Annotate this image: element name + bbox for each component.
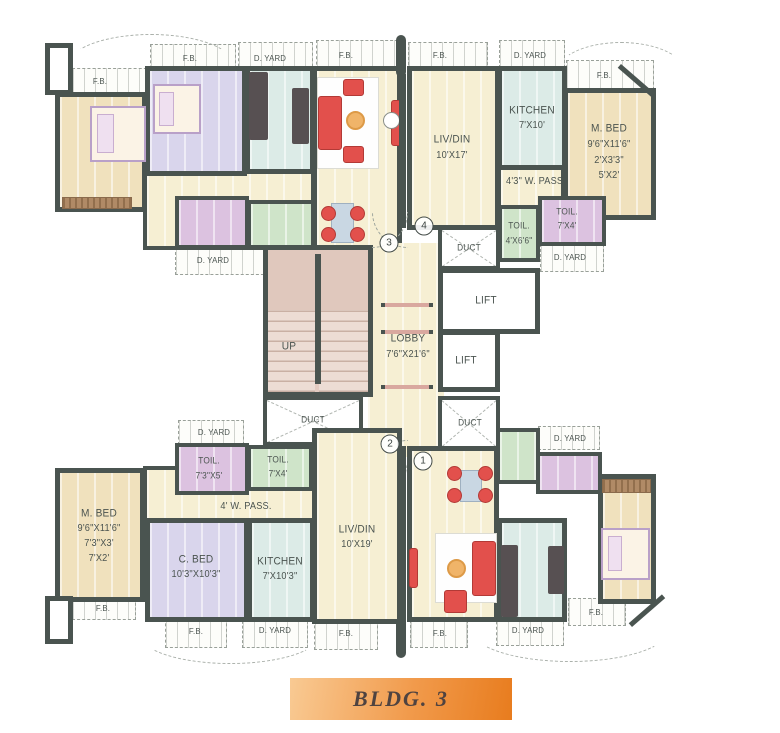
room-dims-mbed-tr-2: 2'X3'3": [594, 156, 624, 166]
strip-label-dyard: D. YARD: [259, 626, 291, 635]
lift-label: LIFT: [455, 356, 477, 367]
room-kitchen-bottom-left: [247, 518, 315, 622]
room-label-toilet-pink-bl: TOIL.: [198, 457, 219, 466]
stair-divider-wall: [315, 254, 321, 384]
room-label-mbed-bl: M. BED: [81, 509, 117, 520]
strip-label-dyard: D. YARD: [197, 256, 229, 265]
room-dims-mbed-tr-3: 5'X2': [599, 171, 620, 181]
balcony-top-left: [45, 43, 73, 95]
grid-marker-1: 1: [414, 452, 433, 471]
room-label-cbed-bl: C. BED: [179, 555, 214, 566]
strip-label-fb: F.B.: [339, 51, 353, 60]
tv-unit-icon: [409, 548, 418, 588]
chair-icon: [447, 466, 462, 481]
armchair-icon: [343, 146, 364, 163]
round-table-icon: [447, 559, 466, 578]
room-toilet-bottom-right-1: [496, 428, 540, 484]
room-dims-mbed-bl-1: 9'6"X11'6": [78, 524, 121, 534]
flower-box-icon: [62, 197, 132, 209]
room-dims-kitchen-bl: 7'X10'3": [263, 572, 298, 582]
side-table-icon: [383, 112, 400, 129]
strip-label-fb: F.B.: [339, 629, 353, 638]
room-dims-toilet-green-tr: 4'X6'6": [506, 237, 533, 246]
lobby-dims: 7'6"X21'6": [386, 350, 430, 360]
building-title: BLDG. 3: [353, 686, 449, 712]
lobby-label: LOBBY: [391, 334, 426, 345]
round-table-icon: [346, 111, 365, 130]
balcony-bottom-left: [45, 596, 73, 644]
chair-icon: [350, 206, 365, 221]
kitchen-counter-icon: [501, 545, 518, 617]
floor-plan-canvas: F.B. F.B. D. YARD F.B. F.B. D. YARD F.B.…: [0, 0, 780, 733]
strip-label-dyard: D. YARD: [554, 253, 586, 262]
grid-marker-3: 3: [380, 234, 399, 253]
strip-label-dyard: D. YARD: [198, 428, 230, 437]
room-dims-mbed-bl-3: 7'X2': [89, 554, 110, 564]
grid-marker-2: 2: [381, 435, 400, 454]
strip-label-fb: F.B.: [589, 608, 603, 617]
kitchen-counter-icon: [292, 88, 309, 144]
door-threshold: [381, 303, 433, 307]
kitchen-counter-icon: [548, 546, 564, 594]
chair-icon: [321, 227, 336, 242]
room-label-toilet-pink-tr: TOIL.: [556, 208, 577, 217]
room-label-livdin-tr: LIV/DIN: [434, 135, 471, 146]
room-dims-livdin-tr: 10'X17': [436, 151, 467, 161]
room-label-kitchen-bl: KITCHEN: [257, 557, 303, 568]
strip-label-dyard: D. YARD: [514, 51, 546, 60]
strip-label-dyard: D. YARD: [554, 434, 586, 443]
building-title-banner: BLDG. 3: [290, 678, 512, 720]
strip-label-fb: F.B.: [597, 71, 611, 80]
room-label-mbed-tr: M. BED: [591, 124, 627, 135]
chair-icon: [350, 227, 365, 242]
sofa-icon: [318, 96, 342, 150]
room-dims-toilet-green-bl: 7'X4': [269, 470, 288, 479]
axis-column-top: [396, 35, 406, 77]
room-dims-kitchen-tr: 7'X10': [519, 121, 545, 131]
room-toilet-top-right-1: [498, 205, 540, 262]
strip-label-dyard: D. YARD: [512, 626, 544, 635]
room-dims-mbed-tr-1: 9'6"X11'6": [588, 140, 631, 150]
stair-up-label: UP: [282, 342, 296, 353]
armchair-icon: [343, 79, 364, 96]
room-toilet-top-left-1: [175, 196, 249, 249]
armchair-icon: [444, 590, 467, 613]
door-threshold: [381, 385, 433, 389]
room-label-toilet-green-bl: TOIL.: [267, 456, 288, 465]
bed-icon: [153, 84, 201, 134]
strip-label-fb: F.B.: [183, 54, 197, 63]
bed-icon: [601, 528, 650, 580]
strip-label-fb: F.B.: [433, 629, 447, 638]
bed-icon: [90, 106, 146, 162]
room-label-livdin-bl: LIV/DIN: [339, 525, 376, 536]
room-dims-toilet-pink-tr: 7'X4': [558, 222, 577, 231]
room-dims-toilet-pink-bl: 7'3"X5': [196, 472, 223, 481]
passage-label-tr: 4'3" W. PASS.: [506, 177, 566, 187]
kitchen-counter-icon: [249, 72, 268, 140]
strip-label-fb: F.B.: [96, 604, 110, 613]
room-toilet-bottom-right-2: [536, 452, 602, 494]
staircase: [263, 245, 373, 397]
chair-icon: [321, 206, 336, 221]
room-label-kitchen-tr: KITCHEN: [509, 106, 555, 117]
room-label-toilet-green-tr: TOIL.: [508, 222, 529, 231]
room-master-bedroom-bottom-left: [55, 468, 145, 602]
room-dims-cbed-bl: 10'3"X10'3": [172, 570, 221, 580]
room-toilet-top-left-2: [247, 200, 315, 249]
duct-label: DUCT: [458, 419, 482, 428]
strip-label-fb: F.B.: [433, 51, 447, 60]
strip-label-dyard: D. YARD: [254, 54, 286, 63]
sofa-icon: [472, 541, 496, 596]
strip-label-fb: F.B.: [189, 627, 203, 636]
chair-icon: [478, 466, 493, 481]
room-kitchen-top-right: [497, 66, 567, 170]
room-living-dining-top-right: [407, 66, 500, 230]
room-dims-mbed-bl-2: 7'3"X3': [84, 539, 114, 549]
duct-label: DUCT: [301, 416, 325, 425]
passage-label-bl: 4' W. PASS.: [220, 502, 271, 512]
axis-wall-top: [399, 74, 406, 228]
room-dims-livdin-bl: 10'X19': [341, 540, 372, 550]
room-toilet-bottom-left-1: [175, 443, 249, 495]
wardrobe-icon: [602, 479, 651, 493]
lift-label: LIFT: [475, 296, 497, 307]
duct-label: DUCT: [457, 244, 481, 253]
grid-marker-4: 4: [415, 217, 434, 236]
stair-flight: [319, 310, 368, 392]
chair-icon: [478, 488, 493, 503]
strip-label-fb: F.B.: [93, 77, 107, 86]
chair-icon: [447, 488, 462, 503]
